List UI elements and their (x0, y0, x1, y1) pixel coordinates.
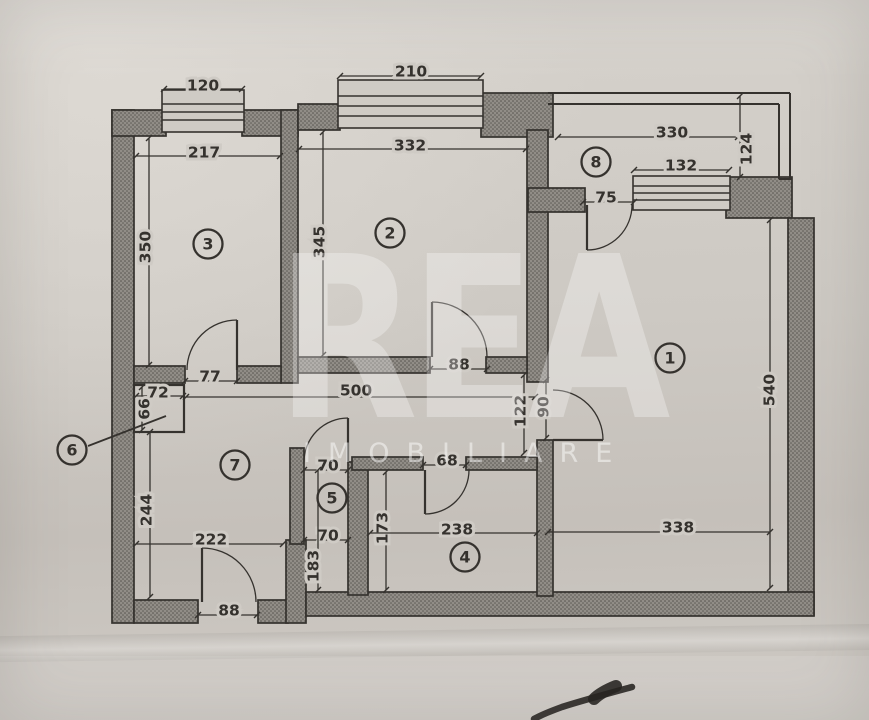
doors-layer (187, 205, 632, 602)
windows-layer (162, 80, 730, 210)
dimension-label: 90 (535, 396, 553, 418)
dimension-label: 210 (395, 63, 428, 81)
wall-segment (286, 540, 306, 623)
wall-segment (486, 357, 527, 373)
dimension-label: 222 (195, 531, 227, 549)
wall-segment (237, 366, 281, 383)
dimension-label: 122 (512, 395, 530, 427)
dimension-label: 183 (305, 550, 323, 582)
wall-segment (112, 110, 166, 136)
dimension-label: 132 (665, 157, 697, 175)
dimension-label: 70 (317, 527, 339, 545)
dimension-label: 70 (317, 457, 339, 475)
dimension-label: 338 (662, 519, 694, 537)
room-number-3: 3 (202, 235, 213, 254)
wall-segment (298, 357, 430, 373)
wall-segment (537, 440, 553, 596)
dimension-label: 244 (138, 494, 156, 527)
door-swing-arc (432, 302, 487, 357)
door-swing-arc (553, 390, 603, 440)
wall-segment (348, 462, 368, 595)
floorplan-drawing: 1202173502103323453301241327554077885001… (0, 0, 869, 720)
door-swing-arc (202, 548, 256, 602)
room-number-2: 2 (384, 224, 395, 243)
dimension-label: 88 (448, 356, 470, 374)
dimension-label: 124 (738, 133, 756, 166)
room-number-4: 4 (459, 548, 470, 567)
wall-segment (528, 188, 585, 212)
dimension-label: 77 (199, 368, 221, 386)
room-number-7: 7 (229, 456, 240, 475)
dimension-label: 500 (340, 382, 373, 400)
wall-segment (290, 448, 304, 544)
dimension-label: 173 (374, 512, 392, 544)
wall-segment (527, 130, 548, 382)
dimension-label: 68 (436, 452, 458, 470)
dimension-label: 75 (595, 189, 617, 207)
room-number-6: 6 (66, 441, 77, 460)
wall-segment (466, 457, 537, 470)
wall-segment (306, 592, 814, 616)
dimension-label: 88 (218, 602, 240, 620)
dimension-label: 330 (656, 124, 689, 142)
wall-segment (726, 177, 792, 218)
wall-segment (134, 600, 198, 623)
door-swing-arc (304, 418, 348, 462)
wall-segment (788, 218, 814, 615)
door-swing-arc (187, 320, 237, 370)
dimensions-layer: 1202173502103323453301241327554077885001… (133, 63, 779, 620)
floorplan-scan: 1202173502103323453301241327554077885001… (0, 0, 869, 720)
dimension-label: 332 (394, 137, 426, 155)
dimension-label: 350 (137, 231, 155, 264)
pen-mark (594, 686, 616, 699)
dimension-label: 345 (311, 226, 329, 258)
window (162, 90, 244, 132)
dimension-label: 120 (187, 77, 220, 95)
wall-segment (112, 110, 134, 623)
room-number-1: 1 (664, 349, 675, 368)
dimension-label: 540 (761, 374, 779, 407)
room-number-5: 5 (326, 489, 337, 508)
dimension-label: 217 (188, 144, 220, 162)
wall-segment (258, 600, 288, 623)
wall-segment (134, 366, 185, 383)
window (338, 80, 483, 128)
wall-segment (281, 110, 298, 383)
dimension-label: 238 (441, 521, 473, 539)
room-number-8: 8 (590, 153, 601, 172)
door-swing-arc (425, 470, 469, 514)
wall-segment (298, 104, 340, 130)
dimension-label: 66 (136, 398, 154, 420)
door-swing-arc (587, 205, 632, 250)
wall-segment (352, 457, 423, 470)
